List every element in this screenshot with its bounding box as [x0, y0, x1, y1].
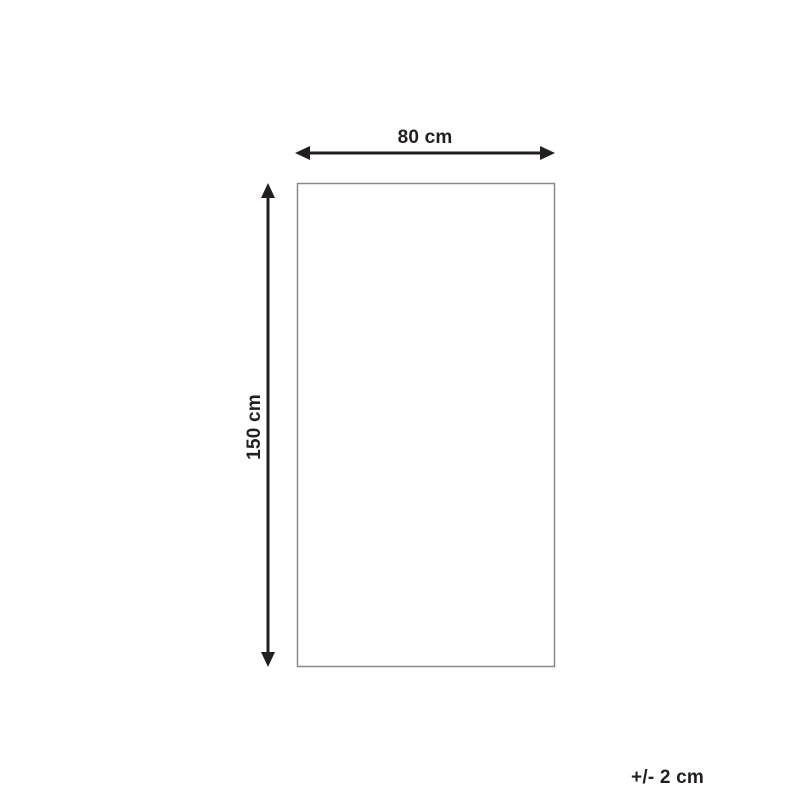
height-arrow-top-head-icon: [261, 183, 275, 198]
diagram-canvas: [0, 0, 800, 800]
height-arrow-bottom-head-icon: [261, 652, 275, 667]
product-outline-rect: [298, 184, 555, 667]
width-dimension-label: 80 cm: [295, 126, 555, 150]
tolerance-label: +/- 2 cm: [590, 766, 745, 790]
height-dimension-label: 150 cm: [243, 367, 267, 487]
dimension-diagram: 80 cm 150 cm +/- 2 cm: [0, 0, 800, 800]
